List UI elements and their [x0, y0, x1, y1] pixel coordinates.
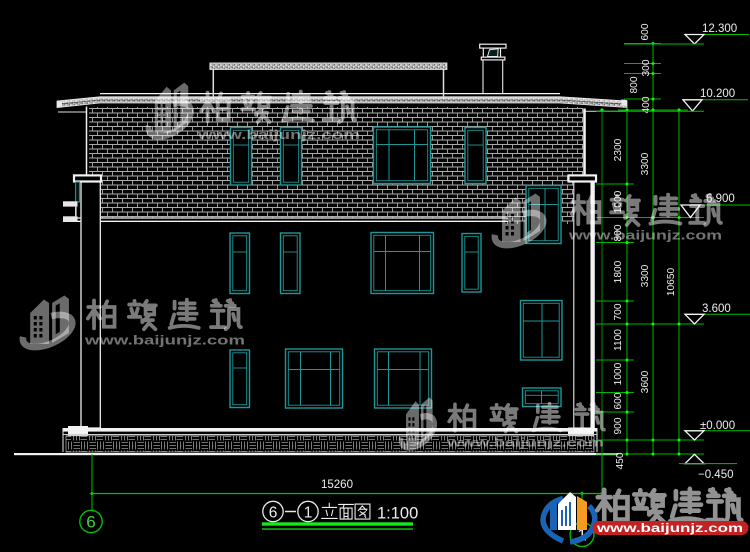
- svg-text:1: 1: [304, 505, 313, 522]
- svg-text:1800: 1800: [613, 260, 624, 283]
- svg-text:10.200: 10.200: [700, 88, 735, 100]
- svg-text:3.600: 3.600: [702, 303, 731, 315]
- svg-text:900: 900: [613, 417, 624, 434]
- svg-text:2300: 2300: [613, 138, 624, 161]
- svg-text:www.baijunjz.com: www.baijunjz.com: [445, 436, 604, 450]
- svg-text:600: 600: [640, 23, 651, 40]
- svg-text:3600: 3600: [640, 370, 651, 393]
- svg-text:www.baijunjz.com: www.baijunjz.com: [568, 229, 722, 243]
- svg-text:1:100: 1:100: [377, 505, 418, 523]
- svg-text:6: 6: [86, 513, 95, 532]
- svg-text:800: 800: [629, 76, 640, 93]
- svg-text:6: 6: [269, 505, 278, 522]
- svg-text:3300: 3300: [640, 264, 651, 287]
- svg-text:10650: 10650: [666, 268, 677, 297]
- svg-text:www.baijunjz.com: www.baijunjz.com: [196, 128, 360, 142]
- svg-text:www.baijunjz.com: www.baijunjz.com: [84, 334, 245, 348]
- svg-text:1000: 1000: [613, 362, 624, 385]
- svg-text:15260: 15260: [321, 479, 353, 491]
- svg-text:700: 700: [613, 303, 624, 320]
- svg-text:−0.450: −0.450: [698, 469, 734, 481]
- svg-text:1100: 1100: [613, 329, 624, 351]
- svg-text:450: 450: [615, 452, 626, 469]
- svg-text:600: 600: [613, 392, 624, 409]
- svg-text:www.baijunjz.com: www.baijunjz.com: [596, 523, 743, 535]
- svg-text:300: 300: [641, 59, 652, 76]
- svg-text:3300: 3300: [640, 152, 651, 175]
- svg-text:12.300: 12.300: [702, 23, 737, 35]
